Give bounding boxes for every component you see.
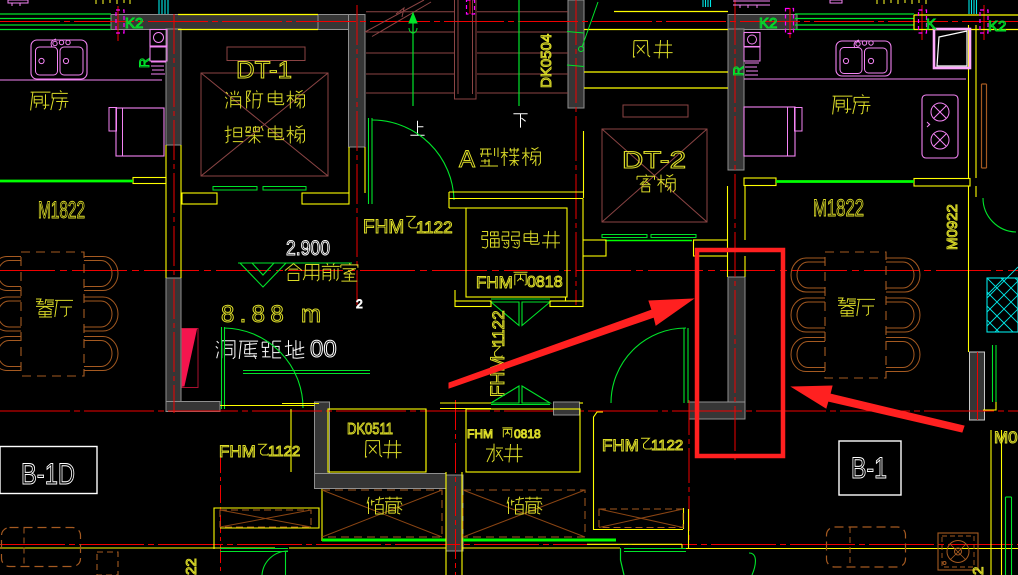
svg-text:K: K (926, 16, 936, 33)
svg-text:FHM: FHM (602, 436, 639, 455)
svg-text:FHM: FHM (467, 427, 493, 441)
svg-text:1122: 1122 (268, 443, 300, 460)
svg-text:0818: 0818 (514, 427, 541, 441)
svg-text:DT-1: DT-1 (236, 57, 292, 84)
svg-text:K2: K2 (759, 15, 777, 32)
svg-text:DT-2: DT-2 (622, 147, 686, 174)
svg-text:M0: M0 (994, 428, 1018, 447)
svg-text:0818: 0818 (527, 274, 563, 291)
svg-text:1122: 1122 (489, 310, 508, 347)
svg-text:FHM: FHM (488, 356, 509, 397)
svg-text:DK0504: DK0504 (538, 34, 555, 88)
svg-text:DK0511: DK0511 (347, 421, 393, 438)
svg-text:B-1: B-1 (851, 452, 887, 485)
svg-text:M1822: M1822 (813, 195, 864, 222)
svg-text:K2: K2 (125, 15, 143, 32)
svg-text:B-1D: B-1D (21, 458, 75, 491)
svg-text:FHM: FHM (476, 273, 513, 292)
svg-text:00: 00 (310, 336, 337, 363)
svg-text:2: 2 (970, 567, 987, 575)
svg-text:2.900: 2.900 (286, 237, 330, 260)
svg-text:FHM: FHM (219, 442, 256, 461)
svg-text:R: R (136, 58, 152, 68)
svg-text:2: 2 (356, 297, 363, 311)
svg-text:22: 22 (183, 558, 200, 575)
svg-text:1122: 1122 (651, 437, 683, 454)
svg-text:R: R (730, 66, 746, 76)
svg-text:M0922: M0922 (944, 204, 961, 250)
svg-text:K2: K2 (988, 18, 1006, 35)
svg-text:A: A (459, 146, 475, 173)
svg-text:FHM: FHM (363, 217, 404, 238)
svg-text:M1822: M1822 (38, 197, 85, 224)
svg-text:1122: 1122 (416, 218, 453, 237)
